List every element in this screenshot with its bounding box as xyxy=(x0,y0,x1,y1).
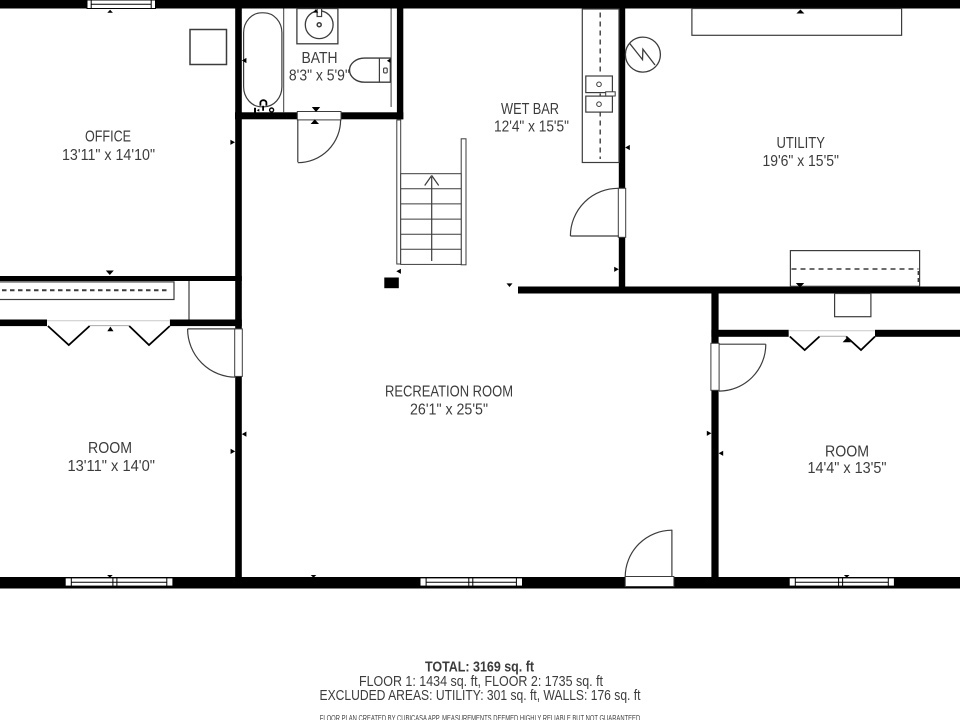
svg-text:EXCLUDED AREAS: UTILITY: 301 s: EXCLUDED AREAS: UTILITY: 301 sq. ft, WAL… xyxy=(320,688,641,704)
svg-text:8'3" x 5'9": 8'3" x 5'9" xyxy=(289,68,350,85)
svg-text:UTILITY: UTILITY xyxy=(776,135,825,152)
svg-text:12'4" x 15'5": 12'4" x 15'5" xyxy=(494,119,569,136)
svg-text:WET BAR: WET BAR xyxy=(501,101,559,118)
svg-text:26'1" x 25'5": 26'1" x 25'5" xyxy=(410,402,488,419)
svg-text:ROOM: ROOM xyxy=(88,440,132,457)
svg-text:BATH: BATH xyxy=(302,50,338,67)
svg-text:13'11" x 14'0": 13'11" x 14'0" xyxy=(67,458,155,475)
svg-text:RECREATION ROOM: RECREATION ROOM xyxy=(385,384,513,401)
svg-text:ROOM: ROOM xyxy=(825,444,869,461)
svg-text:OFFICE: OFFICE xyxy=(85,129,131,146)
svg-text:14'4" x 13'5": 14'4" x 13'5" xyxy=(808,460,887,477)
svg-text:19'6" x 15'5": 19'6" x 15'5" xyxy=(762,153,839,170)
svg-text:13'11" x 14'10": 13'11" x 14'10" xyxy=(62,147,155,164)
svg-text:FLOOR PLAN CREATED BY CUBICASA: FLOOR PLAN CREATED BY CUBICASA APP. MEAS… xyxy=(320,714,642,720)
